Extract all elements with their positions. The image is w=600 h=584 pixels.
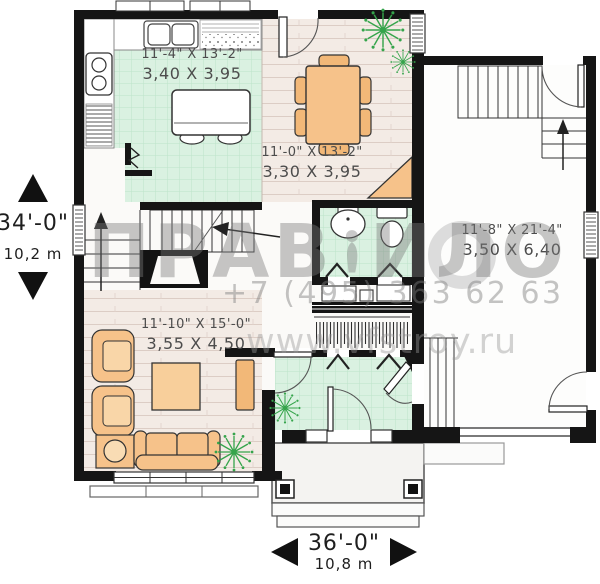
kitchen-dim-imperial: 11'-4" X 13'-2" bbox=[112, 47, 272, 64]
coffee-table bbox=[152, 363, 200, 410]
garage-apron bbox=[424, 443, 504, 464]
porch-column bbox=[404, 480, 422, 498]
tv-stand bbox=[236, 360, 254, 410]
height-imperial: 34'-0" bbox=[0, 211, 69, 236]
entry-sidelight bbox=[306, 430, 392, 442]
width-metric: 10,8 m bbox=[315, 556, 374, 573]
arrow-right-icon bbox=[390, 538, 417, 566]
stove bbox=[86, 53, 112, 95]
porch bbox=[272, 443, 424, 527]
arrow-up-icon bbox=[18, 174, 48, 202]
living-dim-imperial: 11'-10" X 15'-0" bbox=[116, 317, 276, 334]
porch-step bbox=[272, 503, 424, 516]
garage-door bbox=[459, 428, 571, 436]
arrow-left-icon bbox=[271, 538, 298, 566]
living-dim-metric: 3,55 X 4,50 bbox=[116, 334, 276, 355]
counter-texture bbox=[200, 20, 261, 49]
floor-plan-drawing bbox=[0, 0, 600, 584]
chair bbox=[295, 109, 307, 136]
porch-step bbox=[277, 516, 419, 527]
kitchen-dim-metric: 3,40 X 3,95 bbox=[112, 64, 272, 85]
kitchen-window bbox=[116, 1, 250, 11]
chair bbox=[359, 109, 371, 136]
dining-label: 11'-0" X 13'-2" 3,30 X 3,95 bbox=[232, 145, 392, 183]
kitchen-sink bbox=[144, 21, 198, 48]
dining-dim-metric: 3,30 X 3,95 bbox=[232, 162, 392, 183]
living-window bbox=[114, 472, 254, 483]
lamp-icon bbox=[104, 440, 126, 462]
garage-label: 11'-8" X 21'-4" 3,50 X 6,40 bbox=[432, 223, 592, 261]
height-dimension: 34'-0" 10,2 m bbox=[0, 174, 66, 300]
garage-dim-imperial: 11'-8" X 21'-4" bbox=[432, 223, 592, 240]
hanging-clothes bbox=[316, 318, 408, 348]
width-imperial: 36'-0" bbox=[308, 531, 380, 556]
dining-window bbox=[410, 14, 425, 53]
side-table bbox=[96, 435, 134, 468]
window-planter bbox=[90, 486, 258, 497]
toilet-tank bbox=[377, 207, 407, 218]
dishwasher bbox=[86, 104, 112, 146]
bathroom-sink bbox=[331, 210, 365, 238]
stairwell-opening bbox=[150, 256, 200, 284]
porch-column bbox=[276, 480, 294, 498]
sofa bbox=[134, 431, 220, 470]
burner-icon bbox=[92, 76, 106, 90]
arrow-down-icon bbox=[18, 272, 48, 300]
closet bbox=[312, 313, 412, 350]
width-dimension: 36'-0" 10,8 m bbox=[240, 531, 448, 574]
entry-floor bbox=[275, 357, 412, 430]
dining-table bbox=[306, 66, 360, 144]
dining-set bbox=[295, 55, 371, 155]
height-metric: 10,2 m bbox=[4, 245, 63, 263]
floor-plan: 11'-4" X 13'-2" 3,40 X 3,95 11'-0" X 13'… bbox=[0, 0, 600, 584]
dining-dim-imperial: 11'-0" X 13'-2" bbox=[232, 145, 392, 162]
chair bbox=[319, 55, 349, 67]
chair bbox=[295, 77, 307, 104]
hall-window bbox=[73, 205, 85, 255]
armchair bbox=[92, 386, 134, 436]
kitchen-label: 11'-4" X 13'-2" 3,40 X 3,95 bbox=[112, 47, 272, 85]
chair bbox=[359, 77, 371, 104]
garage-dim-metric: 3,50 X 6,40 bbox=[432, 240, 592, 261]
linen-shelves bbox=[312, 302, 412, 313]
toilet-bowl bbox=[381, 221, 403, 247]
burner-icon bbox=[92, 58, 106, 72]
living-label: 11'-10" X 15'-0" 3,55 X 4,50 bbox=[116, 317, 276, 355]
